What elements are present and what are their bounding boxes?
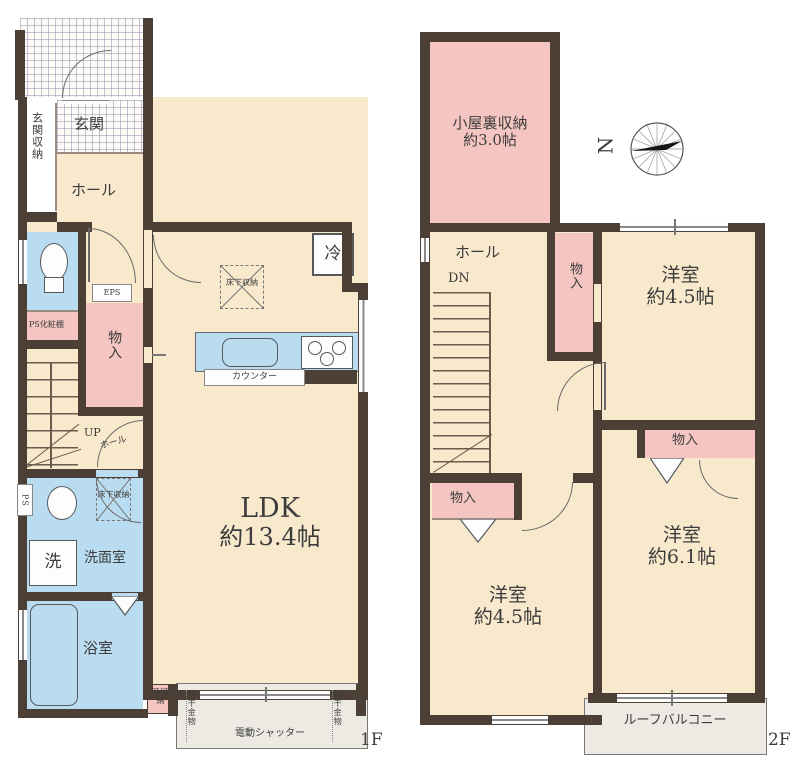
wall [428, 223, 560, 232]
room-c-label: 洋室 約4.5帖 [428, 585, 588, 629]
wall [342, 222, 352, 292]
window [492, 716, 548, 724]
wall [755, 223, 765, 703]
wall [550, 32, 560, 232]
wall [547, 232, 555, 353]
up-label: UP [84, 427, 101, 440]
room-a-size: 約4.5帖 [608, 287, 753, 309]
door-leaf [88, 228, 90, 282]
stairs-2f [433, 292, 489, 474]
ldk-size: 約13.4帖 [185, 524, 355, 552]
counter-label-box: カウンター [204, 369, 305, 386]
ps-label: PS [20, 494, 29, 507]
washer-label: 洗 [45, 553, 62, 573]
window-tick [265, 687, 267, 702]
genkan-label: 玄関 [74, 116, 104, 133]
room-b-label: 洋室 約6.1帖 [612, 525, 752, 569]
window-tick [674, 219, 676, 235]
laundry-left-label: 物干金物 [186, 690, 196, 742]
dn-label: DN [448, 272, 470, 287]
bathroom-label: 浴室 [83, 640, 113, 657]
room-b-name: 洋室 [612, 525, 752, 547]
attic-size: 約3.0帖 [430, 132, 550, 149]
storage-b-label: 物入 [672, 434, 698, 449]
ps-shelf-label: PS化粧棚 [29, 320, 64, 329]
ev-storage-label: EV収納 [148, 687, 173, 705]
window-tick [671, 690, 673, 706]
attic-name: 小屋裏収納 [430, 115, 550, 132]
washbasin-icon [47, 486, 77, 520]
counter-label: カウンター [232, 372, 277, 382]
wall [78, 407, 148, 416]
room-a-label: 洋室 約4.5帖 [608, 265, 753, 309]
genkan-storage-label: 玄関収納 [30, 112, 43, 207]
compass-north-label: N [594, 137, 617, 155]
toilet-icon [40, 243, 68, 281]
storage-room-b [645, 430, 757, 458]
storage-hall-label: 物入 [566, 262, 581, 318]
window [421, 238, 429, 262]
room-c-size: 約4.5帖 [428, 607, 588, 629]
eps-label: EPS [104, 288, 121, 297]
room-a-name: 洋室 [608, 265, 753, 287]
wall [296, 370, 357, 384]
fold-door-icon [650, 458, 684, 484]
wall [18, 212, 57, 222]
wall [18, 340, 80, 349]
underfloor-label-ldk: 床下収納 [224, 278, 260, 287]
stove-icon [301, 336, 353, 369]
wall [593, 420, 765, 430]
laundry-right-label: 物干金物 [332, 690, 342, 742]
window [19, 610, 27, 660]
wall [18, 709, 148, 718]
divider [27, 310, 80, 312]
ldk-label: LDK 約13.4帖 [185, 493, 355, 552]
compass-icon [628, 120, 686, 178]
toilet-tank-icon [44, 277, 64, 293]
room-b-size: 約6.1帖 [612, 547, 752, 569]
stairs-1f [20, 345, 78, 469]
wall [593, 430, 602, 695]
stairs-2f-rail [489, 292, 491, 473]
storage-1f-label: 物入 [106, 330, 122, 386]
room-ldk [143, 97, 368, 700]
wall [420, 32, 560, 42]
ldk-name: LDK [185, 493, 355, 524]
wall [547, 352, 602, 361]
shutter-label: 電動シャッター [225, 728, 315, 740]
floor-label-2f: 2F [768, 731, 791, 751]
bathtub-icon [30, 604, 78, 706]
washer-box: 洗 [29, 540, 77, 586]
room-c-name: 洋室 [428, 585, 588, 607]
door-leaf [604, 362, 606, 410]
underfloor-box-ldk: 床下収納 [220, 265, 264, 309]
stairs-1f-rail [50, 362, 52, 468]
sink-icon [222, 338, 278, 367]
ps-niche: PS [17, 484, 33, 516]
floorplan-canvas: EPS 冷 床下収納 カウンター PS 床下収納 洗 [0, 0, 800, 773]
wall [637, 430, 645, 458]
door-gap [144, 230, 152, 288]
window [359, 300, 368, 392]
door-gap [144, 347, 152, 363]
roof-balcony-label: ルーフバルコニー [595, 714, 755, 729]
hall-2f-label: ホール [455, 244, 500, 261]
wall [428, 473, 522, 483]
divider [55, 103, 57, 211]
door-gap [96, 470, 138, 477]
door-gap [594, 284, 601, 322]
window [19, 240, 27, 284]
door-tick [152, 354, 166, 356]
bath-door-notch [111, 596, 139, 616]
wall [15, 30, 25, 100]
entry-threshold [62, 97, 110, 104]
attic-label: 小屋裏収納 約3.0帖 [430, 115, 550, 150]
eps-box: EPS [92, 284, 132, 302]
wall [573, 473, 602, 483]
door-gap [522, 474, 573, 482]
wall [57, 222, 92, 232]
divider [57, 152, 143, 154]
hall-upper-label: ホール [71, 182, 116, 199]
floor-label-1f: 1F [360, 731, 383, 751]
wall [78, 232, 86, 407]
fridge-label: 冷 [325, 245, 342, 265]
fold-door-icon [460, 519, 496, 543]
wall [153, 222, 352, 232]
washroom-label: 洗面室 [84, 550, 126, 566]
wall [356, 684, 366, 716]
storage-c-label: 物入 [450, 492, 476, 507]
wall [514, 483, 522, 520]
